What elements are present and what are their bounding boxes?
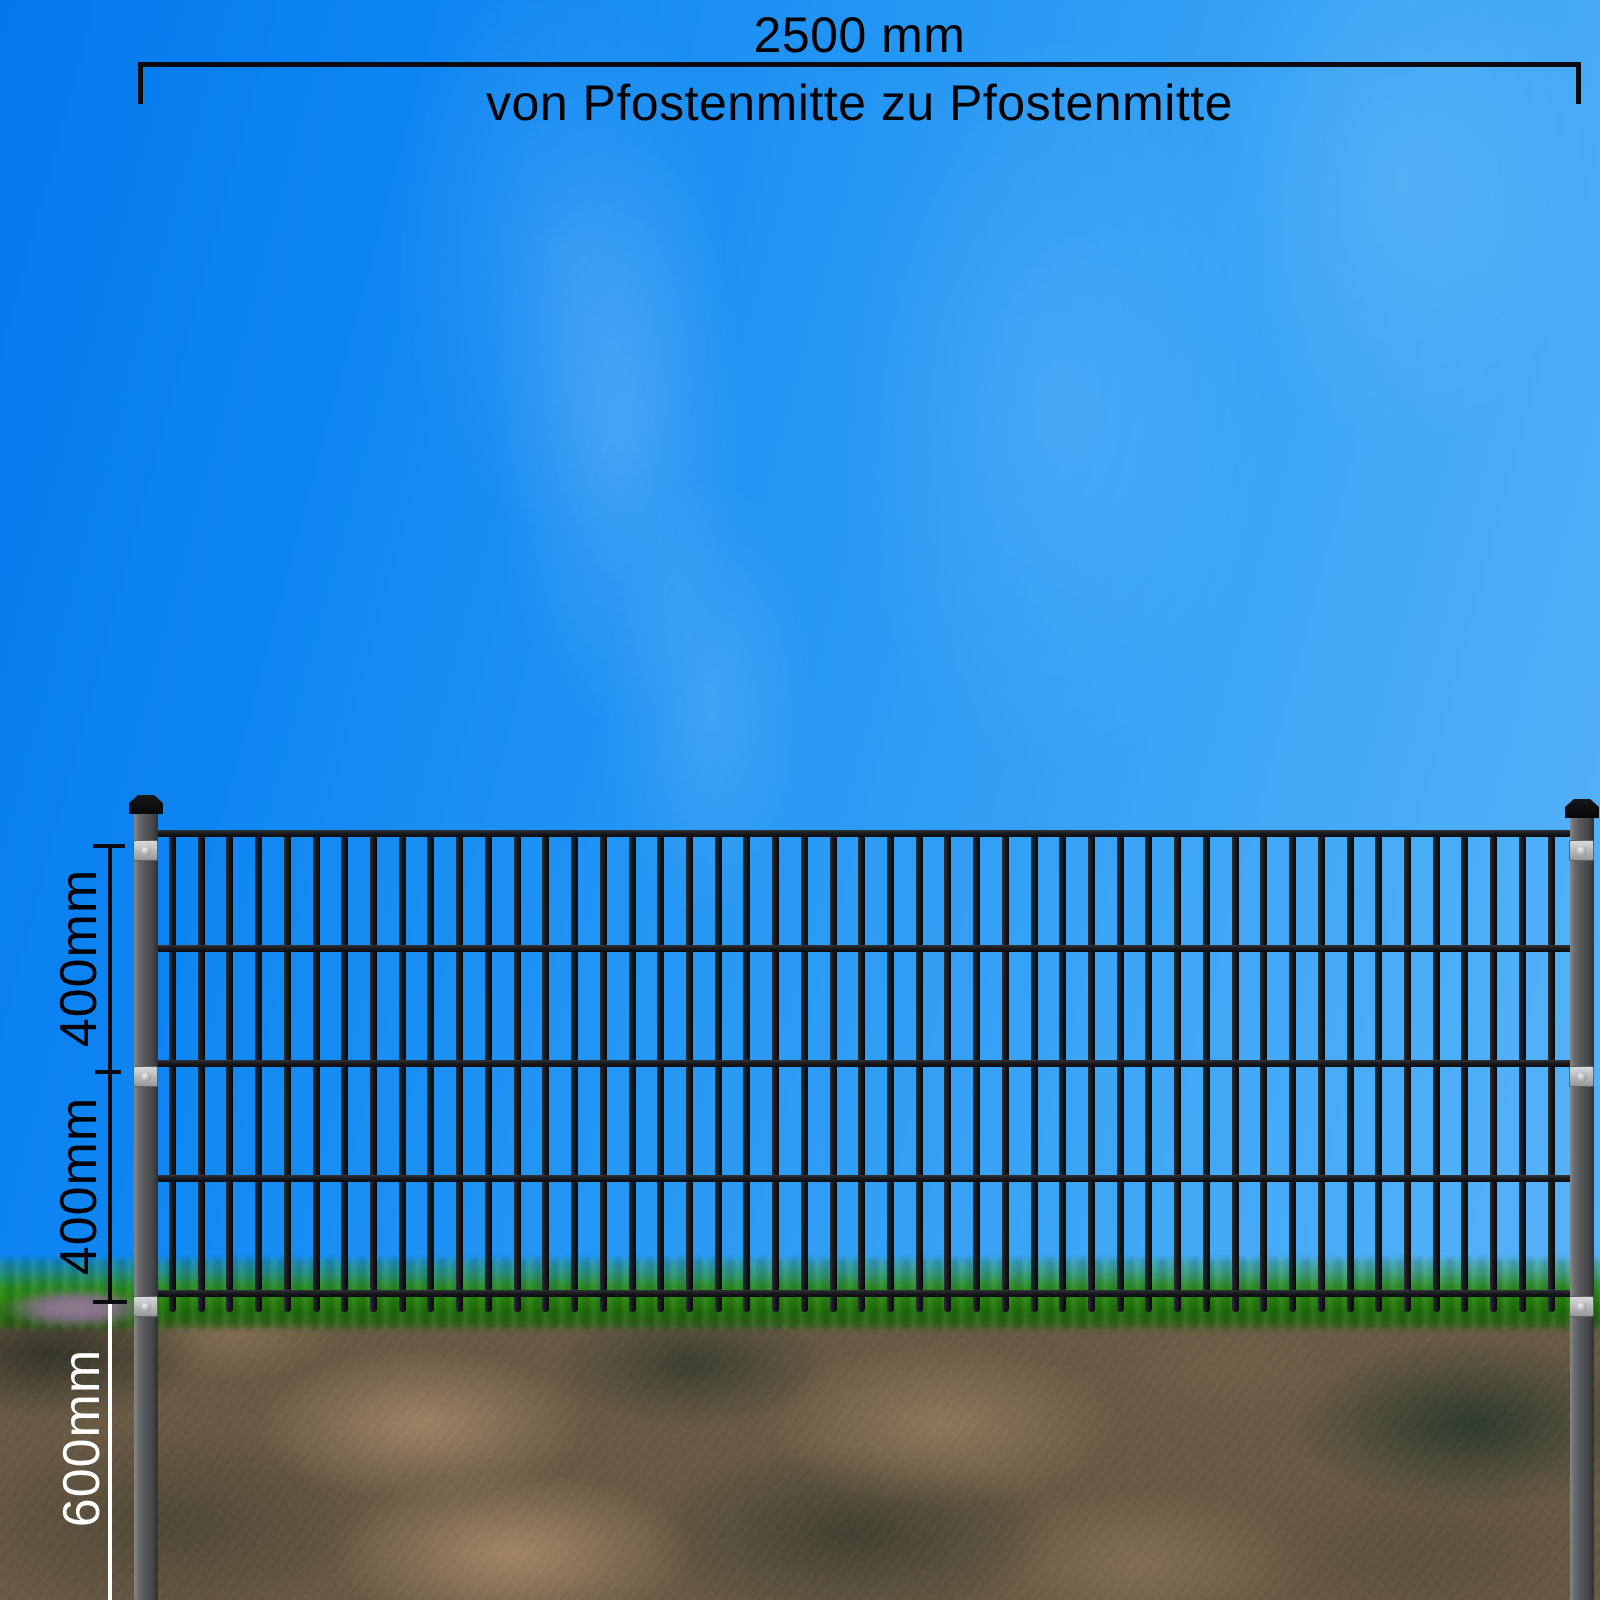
underground-dimension-label: 600mm [52,1349,112,1527]
left-dimension-upper-label: 400mm [49,869,109,1047]
fence-post-right [1570,816,1594,1600]
clamp-plate [1569,1296,1594,1317]
left-dimension-tick-middle [95,1070,121,1074]
top-dimension-line [138,62,1581,67]
fence-post-left [134,812,158,1600]
left-dimension-lower-label: 400mm [49,1097,109,1275]
fence-dimension-diagram: 2500 mm von Pfostenmitte zu Pfostenmitte… [0,0,1600,1600]
left-dimension-tick-top [93,844,125,848]
clamp-plate [1569,1066,1594,1087]
fence-panel [158,830,1570,1297]
top-dimension-caption: von Pfostenmitte zu Pfostenmitte [138,76,1581,131]
clamp-plate [133,1296,158,1317]
clamp-plate [1569,840,1594,861]
soil-ground [0,1304,1600,1600]
clamp-plate [133,1066,158,1087]
clamp-plate [133,840,158,861]
top-dimension-value: 2500 mm [138,8,1581,63]
